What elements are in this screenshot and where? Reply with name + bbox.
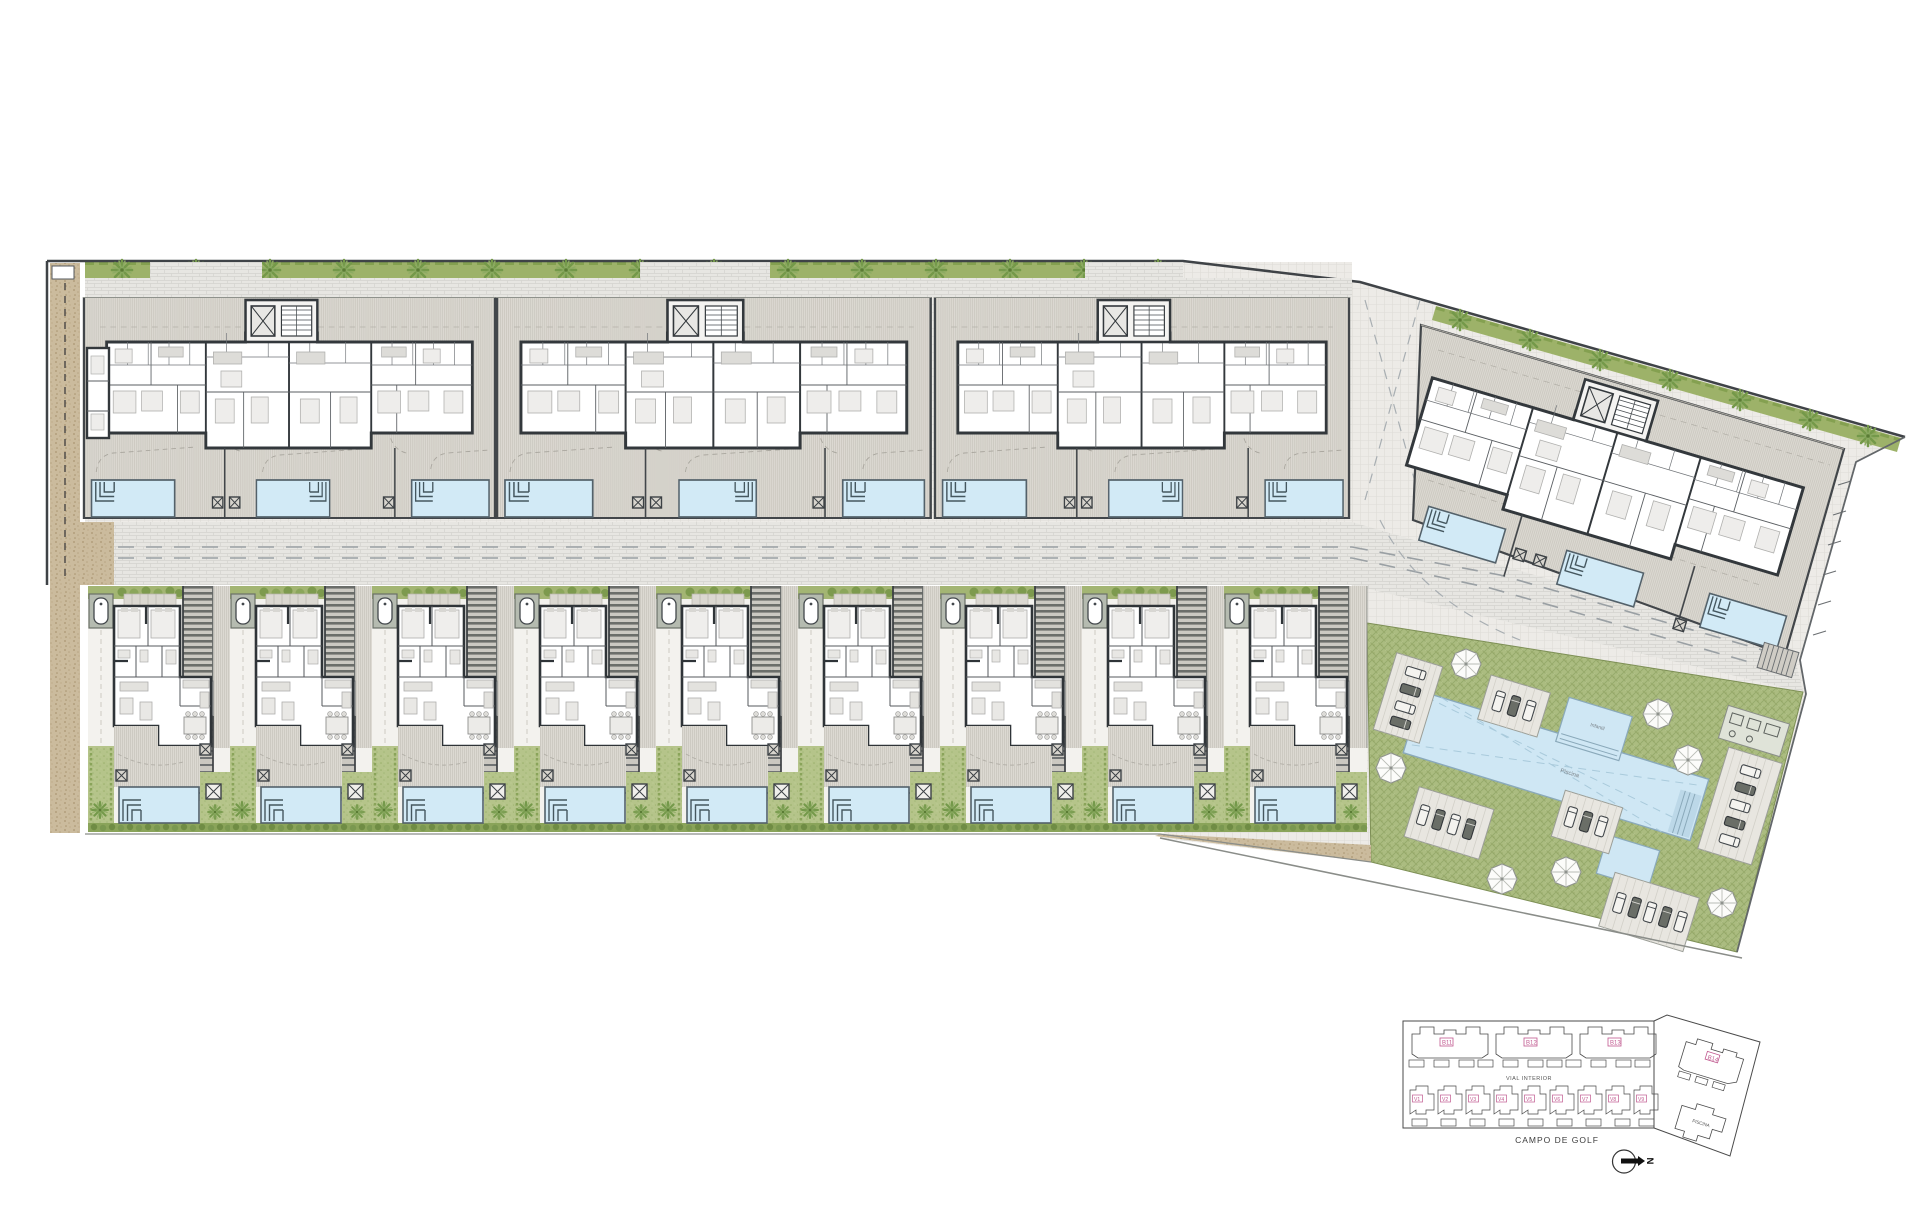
svg-text:VIAL INTERIOR: VIAL INTERIOR: [1506, 1076, 1552, 1082]
svg-text:N: N: [1644, 1158, 1655, 1165]
svg-text:CAMPO DE GOLF: CAMPO DE GOLF: [1515, 1135, 1599, 1145]
svg-text:B13: B13: [1610, 1041, 1621, 1047]
svg-text:B11: B11: [1442, 1041, 1453, 1047]
svg-text:B12: B12: [1526, 1041, 1537, 1047]
